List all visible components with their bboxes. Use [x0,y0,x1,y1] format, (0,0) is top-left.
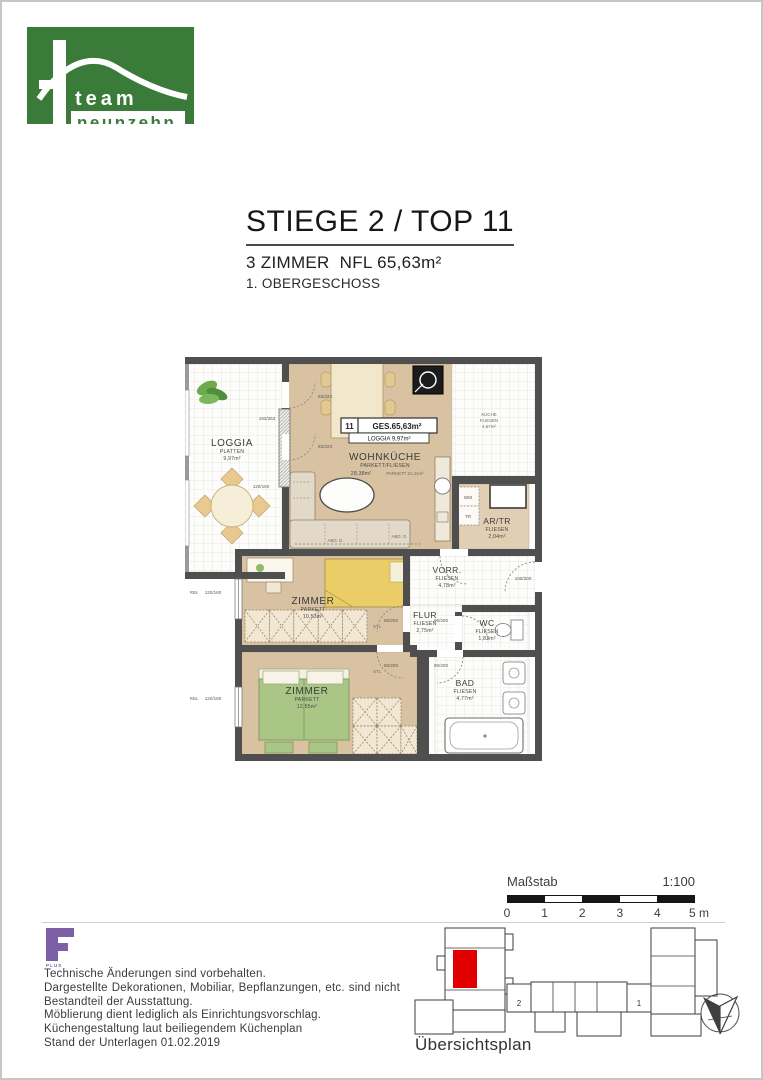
bed-double [259,669,349,753]
stair-label-1: 1 [637,999,642,1008]
door-opening [377,645,403,652]
dim-rbl: RBL [190,590,199,595]
svg-text:12,55m²: 12,55m² [297,704,318,710]
dim-rbl: RBL [190,696,199,701]
dim-door-loggia: 83/223 [318,444,332,449]
dim-stl: STL [373,624,382,629]
header: STIEGE 2 / TOP 11 3 ZIMMER NFL 65,63m² 1… [246,205,514,291]
scale-label: Maßstab [507,874,558,889]
floor-level: 1. OBERGESCHOSS [246,276,514,291]
svg-text:PARKETT: PARKETT [301,607,327,613]
washer-dryer [457,487,479,525]
disclaimer-line: Stand der Unterlagen 01.02.2019 [44,1037,400,1051]
svg-text:2,75m²: 2,75m² [416,628,433,634]
logo-text-neunzehn: neunzehn [77,113,176,124]
scale-tick: 0 [504,906,511,920]
kitchen-counter [435,457,451,541]
room-label-kueche: KÜCHE FLIESEN 4,57m² [480,412,498,429]
coffee-table [320,478,374,512]
bathtub [445,718,523,753]
door-opening [455,616,462,642]
svg-text:KÜCHE: KÜCHE [481,412,496,417]
fplus-logo: PLUS [44,928,84,968]
dim-window-small: 120/160 [253,484,270,489]
svg-text:PARKETT/FLIESEN: PARKETT/FLIESEN [360,463,410,469]
svg-text:WC: WC [480,618,495,628]
svg-text:FLIESEN: FLIESEN [480,418,498,423]
label-tr: TR [465,514,472,519]
disclaimer-line: Küchengestaltung laut beiliegendem Küche… [44,1023,400,1037]
logo-t-crossbar [39,80,66,89]
building-footprint: 2 1 [415,928,717,1036]
disclaimer-line: Dargestellte Dekorationen, Mobiliar, Bep… [44,982,400,996]
svg-text:10,53m²: 10,53m² [303,614,324,620]
svg-text:PARKETT 21,41m²: PARKETT 21,41m² [386,471,424,476]
unit-summary: 3 ZIMMER NFL 65,63m² [246,253,514,273]
stair-label-2: 2 [517,999,522,1008]
footer-divider [42,922,725,923]
door-opening [440,549,468,556]
unit-loggia-area: LOGGIA 9,97m² [367,437,410,443]
entry-door-opening [535,562,542,592]
dim-ceiling: ABG. D [328,538,343,543]
scale-bar-graphic [507,895,695,903]
disclaimer-line: Technische Änderungen sind vorbehalten. [44,968,400,982]
scale-ratio: 1:100 [662,874,695,889]
label-wm: WM [464,495,472,500]
svg-text:28,38m²: 28,38m² [351,471,372,477]
door-opening [282,382,289,408]
window [185,390,189,456]
stove [413,366,443,394]
dim-door: 80/200 [434,663,448,668]
dim-door-loggia: 83/223 [318,394,332,399]
unit-total-area: GES.65,63m² [373,422,422,431]
dim-window-small: 120/160 [205,590,222,595]
unit-info-box: 11 GES.65,63m² LOGGIA 9,97m² [341,418,437,443]
svg-text:FLIESEN: FLIESEN [475,629,498,635]
svg-text:BAD: BAD [456,678,475,688]
svg-text:4,57m²: 4,57m² [482,424,496,429]
scale-bar: Maßstab 1:100 0 1 2 3 4 5 m [507,874,695,922]
room-label-bad: BAD FLIESEN 4,77m² [453,678,476,702]
dim-ceiling: ABG. D [392,534,407,539]
compass-icon [694,992,746,1042]
svg-text:FLIESEN: FLIESEN [485,527,508,533]
dim-door: 80/200 [384,663,398,668]
door-opening [437,650,463,657]
dim-stl: STL [373,669,382,674]
svg-text:9,97m²: 9,97m² [223,456,240,462]
scale-tick: 2 [579,906,586,920]
window [185,480,189,546]
scale-tick: 3 [616,906,623,920]
door-opening [282,434,289,460]
logo-text-team: team [75,88,138,110]
bed-single [325,559,409,607]
svg-text:FLIESEN: FLIESEN [453,689,476,695]
dim-door: 80/200 [434,618,448,623]
disclaimer-line: Möblierung dient lediglich als Einrichtu… [44,1009,400,1023]
svg-text:AR/TR: AR/TR [483,516,511,526]
svg-text:PLATTEN: PLATTEN [220,449,244,455]
disclaimer-line: Bestandteil der Ausstattung. [44,996,400,1010]
svg-text:LOGGIA: LOGGIA [211,438,253,449]
page-title: STIEGE 2 / TOP 11 [246,205,514,246]
shaft [490,485,526,508]
svg-text:4,78m²: 4,78m² [438,583,455,589]
svg-text:ZIMMER: ZIMMER [285,686,328,697]
svg-text:FLIESEN: FLIESEN [435,576,458,582]
dim-window-large: 193/263 [259,416,276,421]
scale-ticks: 0 1 2 3 4 5 m [507,906,695,922]
svg-text:VORR.: VORR. [433,565,462,575]
dim-window-small: 120/160 [205,696,222,701]
disclaimer: Technische Änderungen sind vorbehalten. … [44,968,400,1051]
svg-text:4,77m²: 4,77m² [456,696,473,702]
unit-number: 11 [345,422,354,431]
plan-sheet: team neunzehn STIEGE 2 / TOP 11 3 ZIMMER… [0,0,763,1080]
scale-tick: 1 [541,906,548,920]
svg-text:PARKETT: PARKETT [295,697,321,703]
brand-logo: team neunzehn [27,27,194,124]
overview-label: Übersichtsplan [415,1035,532,1055]
scale-tick: 5 m [689,906,709,920]
dim-entry-door: 100/200 [515,576,532,581]
scale-tick: 4 [654,906,661,920]
dim-door: 80/200 [384,618,398,623]
door-opening [403,606,410,632]
svg-text:1,83m²: 1,83m² [478,636,495,642]
highlighted-unit [453,950,477,988]
svg-text:WOHNKÜCHE: WOHNKÜCHE [349,451,421,463]
svg-text:ZIMMER: ZIMMER [291,596,334,607]
svg-text:2,04m²: 2,04m² [488,534,505,540]
floor-plan: 11 GES.65,63m² LOGGIA 9,97m² LOGGIA PLAT… [185,354,542,764]
